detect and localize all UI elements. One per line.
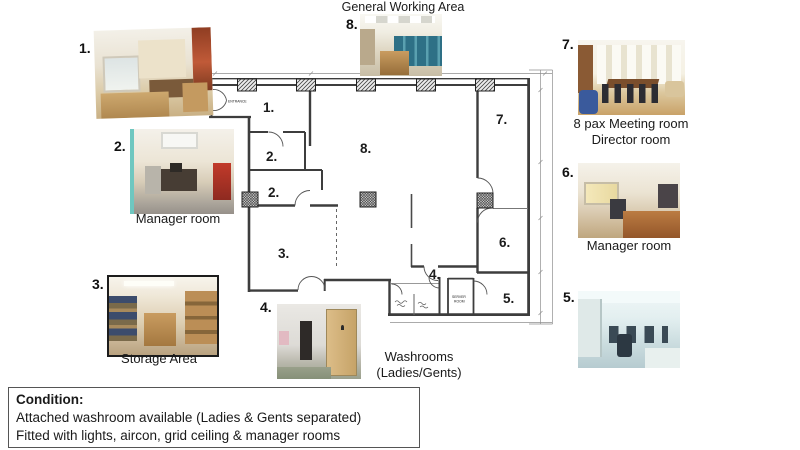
door-swings [269, 132, 494, 295]
photo-6-manager-room [578, 163, 680, 238]
toilet-fixtures [395, 301, 428, 308]
condition-heading: Condition: [16, 392, 83, 407]
photo-1-office-room [94, 27, 214, 119]
photo-3-number: 3. [92, 276, 104, 292]
room-label-6: 6. [499, 235, 510, 250]
photo-4-washroom-corridor [277, 304, 361, 379]
photo-7-meeting-room [578, 40, 685, 115]
photo-7-number: 7. [562, 36, 574, 52]
photo-2-number: 2. [114, 138, 126, 154]
photo-5-number: 5. [563, 289, 575, 305]
room-label-5: 5. [503, 291, 514, 306]
entrance-door [213, 89, 227, 110]
photo-2-caption: Manager room [122, 211, 234, 227]
photo-4-caption: Washrooms (Ladies/Gents) [366, 349, 472, 381]
photo-4-caption-line1: Washrooms [366, 349, 472, 365]
room-label-8: 8. [360, 141, 371, 156]
general-working-area-title: General Working Area [340, 0, 466, 14]
photo-8-general-working-area [360, 14, 442, 76]
photo-3-storage-area [107, 275, 219, 357]
server-room-label-line1: SERVER [452, 295, 466, 299]
condition-line-2: Fitted with lights, aircon, grid ceiling… [16, 427, 412, 445]
condition-line-1: Attached washroom available (Ladies & Ge… [16, 409, 412, 427]
photo-8-number: 8. [346, 16, 358, 32]
room-label-4: 4. [429, 267, 440, 282]
photo-7-caption: 8 pax Meeting room Director room [556, 116, 706, 148]
photo-3-caption: Storage Area [103, 351, 215, 367]
photo-7-caption-line1: 8 pax Meeting room [556, 116, 706, 132]
photo-4-number: 4. [260, 299, 272, 315]
photo-1-number: 1. [79, 40, 91, 56]
dimension-lines [210, 70, 553, 324]
photo-4-caption-line2: (Ladies/Gents) [366, 365, 472, 381]
photo-6-number: 6. [562, 164, 574, 180]
room-label-3: 3. [278, 246, 289, 261]
photo-5-office-room [578, 291, 680, 368]
photo-7-caption-line2: Director room [556, 132, 706, 148]
condition-box: Condition: Attached washroom available (… [8, 387, 420, 448]
floorplan: ENTRANCE [198, 58, 562, 334]
room-label-1: 1. [263, 100, 274, 115]
room-label-2b: 2. [268, 185, 279, 200]
photo-6-caption: Manager room [574, 238, 684, 254]
slide: General Working Area [0, 0, 800, 450]
photo-2-manager-room [130, 129, 234, 214]
server-room-label-line2: ROOM [454, 300, 465, 304]
room-label-7: 7. [496, 112, 507, 127]
room-label-2a: 2. [266, 149, 277, 164]
entrance-label: ENTRANCE [228, 100, 247, 104]
